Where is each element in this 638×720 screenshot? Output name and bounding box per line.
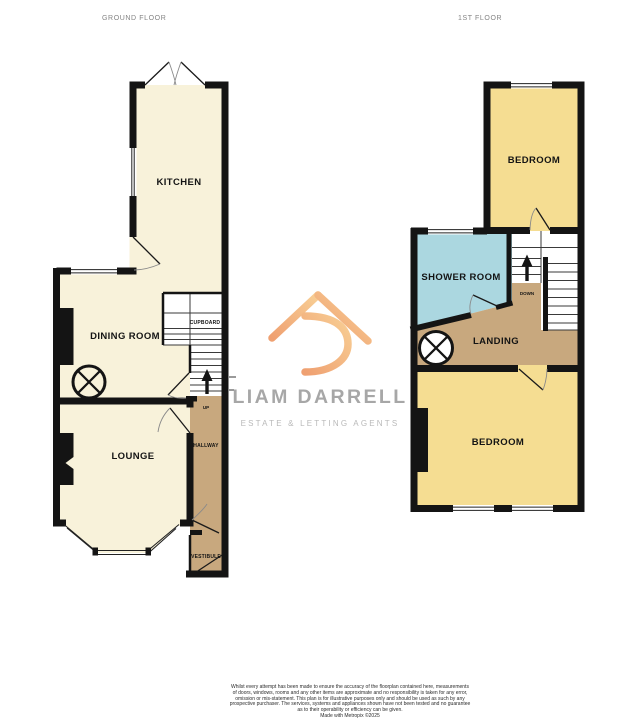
up-label: UP (203, 405, 209, 410)
side-gate-marks (229, 377, 236, 390)
shower-room-label: SHOWER ROOM (421, 272, 500, 283)
dining-room-label: DINING ROOM (90, 331, 160, 342)
vestibule-label: VESTIBULE (191, 554, 221, 560)
cupboard-label: CUPBOARD (190, 320, 221, 326)
hallway-vestibule-floor-area (190, 396, 222, 574)
hallway-label: HALLWAY (193, 443, 219, 449)
floorplan-page: GROUND FLOOR 1ST FLOOR LIAM DARRELL ESTA… (0, 0, 638, 720)
stairs-divider-wall (543, 257, 548, 331)
landing-light-icon (420, 332, 453, 365)
first-floor-plan: BEDROOM SHOWER ROOM DOWN LANDING BEDROOM (411, 82, 585, 513)
kitchen-label: KITCHEN (156, 177, 201, 188)
disclaimer-text: Whilst every attempt has been made to en… (225, 685, 475, 720)
floorplan-canvas: KITCHEN DINING ROOM LOUNGE CUPBOARD UP H… (0, 0, 638, 720)
ground-windows (71, 148, 137, 275)
kitchen-floor-area (130, 85, 229, 295)
first-chimney-breast (414, 408, 428, 472)
down-label: DOWN (520, 291, 534, 296)
cupboard-stairs-area (163, 293, 222, 345)
rear-bedroom-label: BEDROOM (472, 437, 524, 448)
ground-floor-plan: KITCHEN DINING ROOM LOUNGE CUPBOARD UP H… (57, 62, 237, 578)
front-bedroom-label: BEDROOM (508, 155, 560, 166)
disclaimer-credit: Made with Metropix ©2025 (225, 714, 475, 720)
lounge-label: LOUNGE (111, 451, 154, 462)
landing-label: LANDING (473, 336, 519, 347)
